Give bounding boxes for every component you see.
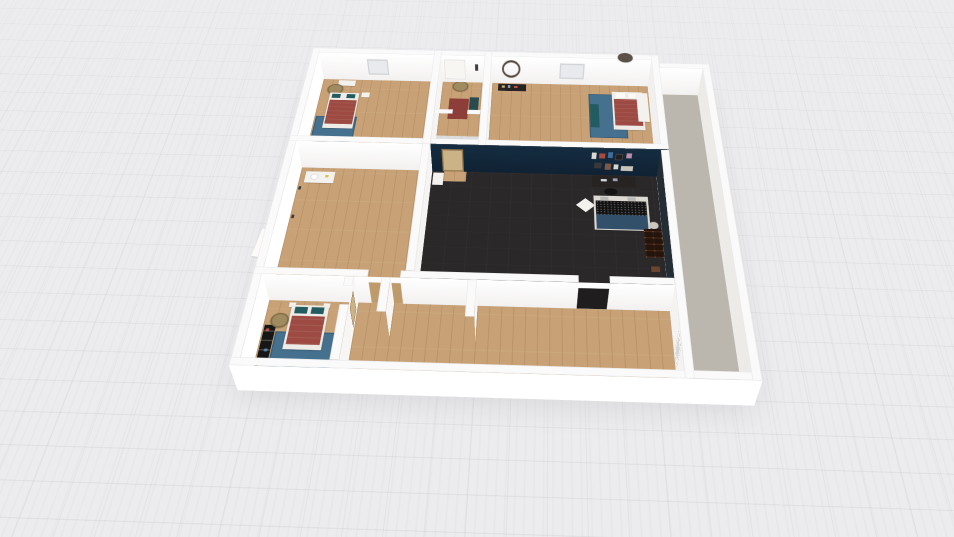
pillow-white <box>615 93 625 98</box>
desk-item <box>613 178 618 181</box>
wall-bath-closet-a[interactable] <box>434 109 453 114</box>
ceiling-lamp[interactable] <box>617 53 633 63</box>
vanity-sink <box>310 174 319 180</box>
bed-dark-room[interactable] <box>593 195 650 231</box>
white-cabinet-small[interactable] <box>432 172 444 185</box>
pillow-teal <box>346 94 355 98</box>
nightstand-top-left[interactable] <box>361 92 370 97</box>
poster <box>594 163 602 169</box>
poster <box>613 164 618 169</box>
house-plan <box>238 74 755 406</box>
wall-face-bedroom1-south[interactable] <box>288 140 432 170</box>
wood-door-navy-wall[interactable] <box>441 149 464 172</box>
pillow-white <box>628 93 638 98</box>
wall-switch <box>475 64 478 70</box>
bathroom-door-white[interactable] <box>444 59 466 79</box>
doorway-dark-room[interactable] <box>577 288 610 309</box>
poster <box>626 153 632 158</box>
floorplan-canvas[interactable] <box>0 0 954 537</box>
vanity-item-yellow <box>325 175 329 177</box>
vanity-table[interactable] <box>304 171 336 183</box>
dresser-item <box>502 85 505 87</box>
window-b[interactable] <box>559 63 585 79</box>
poster <box>608 152 613 158</box>
blanket-maroon <box>324 100 357 125</box>
blanket-maroon <box>614 99 644 126</box>
pillow-teal <box>332 94 341 98</box>
dark-dresser[interactable] <box>498 84 526 92</box>
desk-chair[interactable] <box>604 188 618 195</box>
round-table-bottom-left[interactable] <box>269 313 290 328</box>
dresser-item <box>508 85 511 88</box>
poster <box>605 163 612 169</box>
poster-banner <box>621 166 634 171</box>
duvet-speckled-black <box>596 200 648 215</box>
desk-dark[interactable] <box>591 175 636 187</box>
poster <box>615 154 623 161</box>
poster <box>599 153 606 158</box>
wall-face-navy[interactable] <box>430 144 669 177</box>
desk-monitor <box>601 179 607 182</box>
window-a[interactable] <box>367 59 389 75</box>
dresser-item <box>514 86 518 88</box>
door-threshold-wood <box>443 171 467 182</box>
pillow-teal <box>311 307 325 314</box>
wall-mirror-round[interactable] <box>502 60 521 78</box>
pillow-teal <box>294 307 308 314</box>
poster <box>591 153 596 160</box>
wall-bath-closet-b[interactable] <box>467 110 481 115</box>
